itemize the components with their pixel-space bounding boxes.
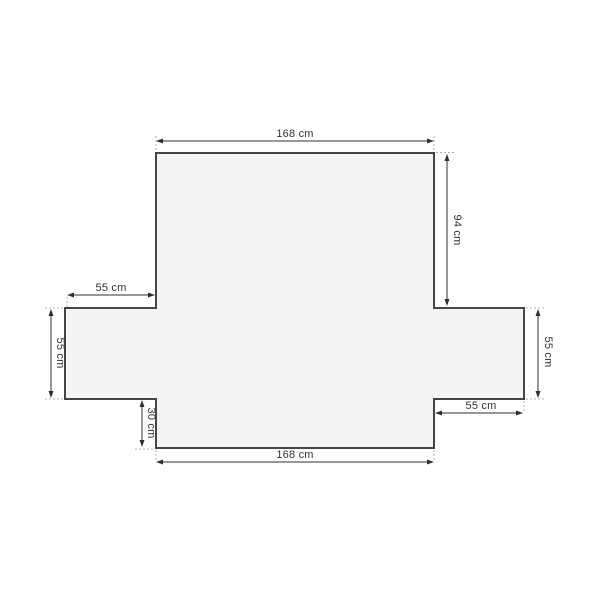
dimension-bottom-width: 168 cm [156,449,434,465]
arrow-head-left [156,139,163,144]
dimension-label: 55 cm [96,282,127,294]
arrow-head-left [67,293,74,298]
dimension-left-arm-height: 55 cm [45,308,66,399]
arrow-head-left [435,411,442,416]
arrow-head-left [156,460,163,465]
arrow-head-down [445,299,450,306]
dimension-label: 168 cm [276,449,313,461]
diagram-canvas: 168 cm 94 cm 55 cm 55 cm [0,0,600,600]
arrow-head-right [148,293,155,298]
arrow-head-right [427,460,434,465]
arrow-head-down [49,391,54,398]
arrow-head-right [516,411,523,416]
dimension-label: 55 cm [466,400,497,412]
cover-shape-outline [65,153,524,448]
arrow-head-down [536,391,541,398]
dimension-right-arm-height: 55 cm [526,308,554,399]
dimension-label: 168 cm [276,128,313,140]
dimension-diagram: 168 cm 94 cm 55 cm 55 cm [0,0,600,600]
dimension-front-flap-height: 30 cm [135,400,157,449]
dimension-right-arm-width: 55 cm [435,400,524,416]
dimension-label: 55 cm [542,337,554,368]
arrow-head-up [140,400,145,407]
dimension-top-width: 168 cm [156,128,434,151]
dimension-left-arm-width: 55 cm [67,282,155,307]
dimension-back-height: 94 cm [436,153,463,307]
arrow-head-down [140,440,145,447]
arrow-head-up [49,309,54,316]
dimension-label: 94 cm [451,215,463,246]
dimension-label: 30 cm [145,408,157,439]
arrow-head-up [536,309,541,316]
arrow-head-up [445,154,450,161]
dimension-label: 55 cm [54,338,66,369]
arrow-head-right [427,139,434,144]
